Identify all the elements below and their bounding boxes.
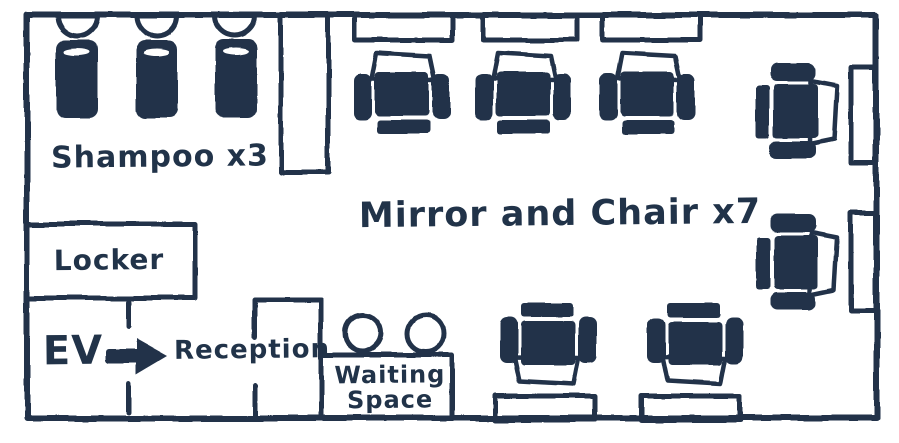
waiting-stool (407, 316, 443, 352)
shampoo-bed (136, 40, 178, 118)
shampoo-bed (56, 40, 98, 118)
mirror-panel (603, 15, 700, 40)
styling-chair (599, 53, 695, 134)
locker-room-label: Locker (54, 243, 165, 277)
styling-chair (354, 53, 450, 134)
styling-chair (756, 63, 837, 159)
mirror-panel (851, 68, 875, 163)
waiting-stool (345, 315, 381, 351)
shampoo-bed (215, 40, 257, 118)
reception-label: Reception (174, 334, 330, 366)
mirror-chair-area-label: Mirror and Chair x7 (359, 192, 762, 236)
elevator-label: EV (43, 328, 104, 375)
floor-plan: Shampoo x3 Mirror and Chair x7 Locker EV… (0, 0, 899, 443)
partition-wall (281, 14, 328, 173)
mirror-panel (355, 15, 452, 40)
styling-chair (647, 303, 743, 384)
waiting-space-label: Waiting Space (334, 362, 446, 414)
shampoo-basin (137, 16, 177, 36)
shampoo-basin (57, 16, 97, 36)
styling-chair (475, 53, 571, 134)
styling-chair (756, 214, 837, 310)
shampoo-basin (215, 16, 255, 36)
mirror-panel (851, 213, 875, 311)
shampoo-area-label: Shampoo x3 (51, 138, 269, 175)
styling-chair (500, 303, 596, 384)
waiting-space-label-line2: Space (334, 387, 445, 413)
right-arrow-icon (106, 338, 168, 375)
mirror-panel (483, 15, 578, 40)
